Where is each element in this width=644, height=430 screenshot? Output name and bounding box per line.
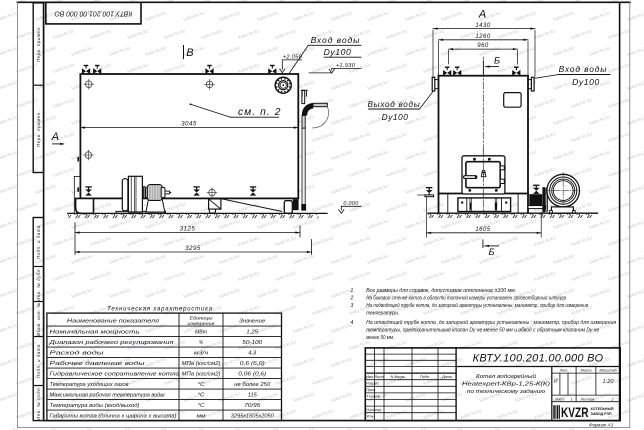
svg-text:+1.930: +1.930	[336, 63, 356, 69]
svg-text:Техническая характеристика: Техническая характеристика	[107, 307, 213, 313]
svg-text:Взам. инв. №: Взам. инв. №	[36, 302, 41, 336]
svg-text:50-100: 50-100	[242, 340, 262, 346]
svg-text:3: 3	[351, 303, 354, 309]
svg-text:Подп.: Подп.	[420, 375, 430, 379]
svg-text:Подп. и дата: Подп. и дата	[36, 225, 41, 259]
svg-text:МПа (кгс/см2): МПа (кгс/см2)	[182, 361, 221, 367]
svg-text:1605: 1605	[475, 227, 491, 233]
svg-text:Б: Б	[488, 246, 494, 257]
svg-text:Формат А3: Формат А3	[589, 423, 614, 428]
svg-text:Dy100: Dy100	[572, 77, 600, 87]
svg-text:Дата: Дата	[441, 375, 452, 379]
svg-text:ЗАВОД РЭП: ЗАВОД РЭП	[591, 412, 612, 416]
svg-text:Значение: Значение	[239, 318, 265, 324]
svg-text:На боковой стенке котла в обла: На боковой стенке котла в области топочн…	[366, 295, 566, 302]
svg-text:Dy100: Dy100	[324, 47, 352, 57]
svg-text:2: 2	[610, 397, 613, 401]
svg-text:Инв. № дубл.: Инв. № дубл.	[36, 267, 41, 301]
svg-text:Масштаб: Масштаб	[599, 369, 617, 373]
svg-text:3295х1605х2050: 3295х1605х2050	[231, 413, 274, 419]
svg-text:1: 1	[570, 397, 572, 401]
svg-text:1430: 1430	[475, 23, 491, 29]
svg-text:Пров.: Пров.	[366, 388, 376, 392]
svg-text:А: А	[478, 9, 486, 21]
svg-text:°С: °С	[198, 382, 205, 388]
svg-text:Листов: Листов	[580, 397, 595, 401]
svg-text:4: 4	[351, 320, 354, 326]
svg-text:Лит.: Лит.	[559, 369, 569, 373]
svg-text:0,6 (6,0): 0,6 (6,0)	[240, 361, 265, 367]
svg-text:На подводящей трубе котла, до: На подводящей трубе котла, до запорной а…	[366, 302, 588, 309]
svg-text:Dy100: Dy100	[382, 112, 409, 122]
svg-text:Перв. примен.: Перв. примен.	[36, 111, 41, 147]
svg-text:Подп. и дата: Подп. и дата	[36, 344, 41, 378]
svg-text:3045: 3045	[181, 121, 197, 128]
svg-text:Б: Б	[494, 54, 500, 65]
svg-text:МВт: МВт	[195, 329, 207, 335]
svg-text:м3/ч: м3/ч	[194, 350, 209, 356]
svg-text:1260: 1260	[475, 34, 491, 40]
svg-text:мм: мм	[197, 413, 207, 419]
svg-text:Выход воды: Выход воды	[367, 100, 420, 109]
svg-text:Котел водогрейный: Котел водогрейный	[476, 373, 536, 380]
svg-text:3295: 3295	[185, 245, 201, 252]
svg-text:3125: 3125	[180, 226, 196, 233]
svg-text:Лист: Лист	[554, 397, 565, 401]
svg-text:Лист: Лист	[373, 375, 384, 379]
svg-text:Разраб.: Разраб.	[366, 381, 379, 385]
svg-text:Температура воды (вход/выход): Температура воды (вход/выход)	[50, 403, 140, 409]
svg-text:по техническому заданию: по техническому заданию	[467, 389, 545, 395]
svg-text:N докум.: N докум.	[391, 375, 406, 379]
svg-text:Номинальная мощность: Номинальная мощность	[50, 329, 140, 335]
svg-text:Единицы: Единицы	[190, 315, 213, 321]
svg-text:менее 50 мм.: менее 50 мм.	[366, 335, 394, 341]
svg-text:Вход воды: Вход воды	[311, 35, 361, 45]
svg-text:115: 115	[248, 392, 257, 398]
svg-text:%: %	[199, 340, 203, 346]
svg-text:Габариты котла (длинна х ширин: Габариты котла (длинна х ширина х высота…	[50, 413, 177, 419]
svg-text:4,3: 4,3	[248, 350, 256, 356]
svg-text:И: И	[554, 379, 558, 385]
svg-text:см. п. 2: см. п. 2	[238, 107, 281, 118]
svg-text:°С: °С	[198, 403, 205, 409]
svg-text:Масса: Масса	[581, 369, 592, 373]
svg-text:1,25: 1,25	[246, 329, 258, 335]
svg-text:Все размеры для справок, допус: Все размеры для справок, допустимое откл…	[366, 288, 516, 294]
svg-text:Т.контр.: Т.контр.	[366, 395, 381, 399]
svg-text:КОТЕЛЬНЫЙ: КОТЕЛЬНЫЙ	[591, 407, 614, 411]
svg-text:Диапазон рабочего регулировани: Диапазон рабочего регулирования	[48, 340, 173, 346]
svg-text:960: 960	[477, 43, 489, 49]
svg-text:1:20: 1:20	[603, 379, 615, 385]
svg-text:КВТУ.100.201.00.000 ВО: КВТУ.100.201.00.000 ВО	[473, 353, 604, 365]
svg-text:измерения: измерения	[188, 322, 215, 327]
svg-text:Heatexpert-КВр-1,25-К(К): Heatexpert-КВр-1,25-К(К)	[462, 382, 550, 388]
svg-text:Наименование показателя: Наименование показателя	[67, 318, 159, 324]
svg-text:Утв.: Утв.	[366, 414, 374, 418]
svg-text:Инв. № подл.: Инв. № подл.	[36, 386, 41, 420]
svg-text:А: А	[51, 131, 59, 143]
svg-text:температуры, предохранительный: температуры, предохранительный клапан Dу…	[366, 327, 599, 334]
svg-text:Температура уходящих газов: Температура уходящих газов	[50, 382, 129, 388]
svg-text:КВТУ.100.201.00.000 ВО: КВТУ.100.201.00.000 ВО	[54, 9, 132, 16]
svg-text:Изм.: Изм.	[366, 375, 374, 379]
svg-text:2: 2	[350, 296, 354, 302]
svg-text:70/95: 70/95	[244, 403, 260, 409]
svg-text:0,06 (0,6): 0,06 (0,6)	[238, 371, 266, 377]
svg-text:МПа (кгс/см2): МПа (кгс/см2)	[182, 371, 221, 377]
svg-text:Вход воды: Вход воды	[559, 64, 608, 74]
svg-text:температуры.: температуры.	[366, 311, 399, 317]
svg-text:1: 1	[351, 288, 354, 294]
svg-text:не более 250: не более 250	[234, 382, 270, 388]
svg-text:Расход воды: Расход воды	[50, 350, 104, 356]
svg-text:В: В	[186, 47, 193, 59]
svg-text:Максимальная рабочая температу: Максимальная рабочая температура воды	[50, 392, 165, 398]
svg-text:Перв. примен.: Перв. примен.	[36, 26, 41, 62]
svg-text:На отводящей трубе котла ,до з: На отводящей трубе котла ,до запорной ар…	[366, 319, 616, 326]
svg-text:Рабочее давление воды: Рабочее давление воды	[50, 361, 145, 367]
svg-text:KVZR: KVZR	[561, 405, 589, 420]
svg-text:Н.контр.: Н.контр.	[366, 408, 382, 412]
svg-text:°С: °С	[198, 392, 205, 398]
svg-text:Гидравлическое сопративление к: Гидравлическое сопративление котла	[50, 371, 180, 377]
